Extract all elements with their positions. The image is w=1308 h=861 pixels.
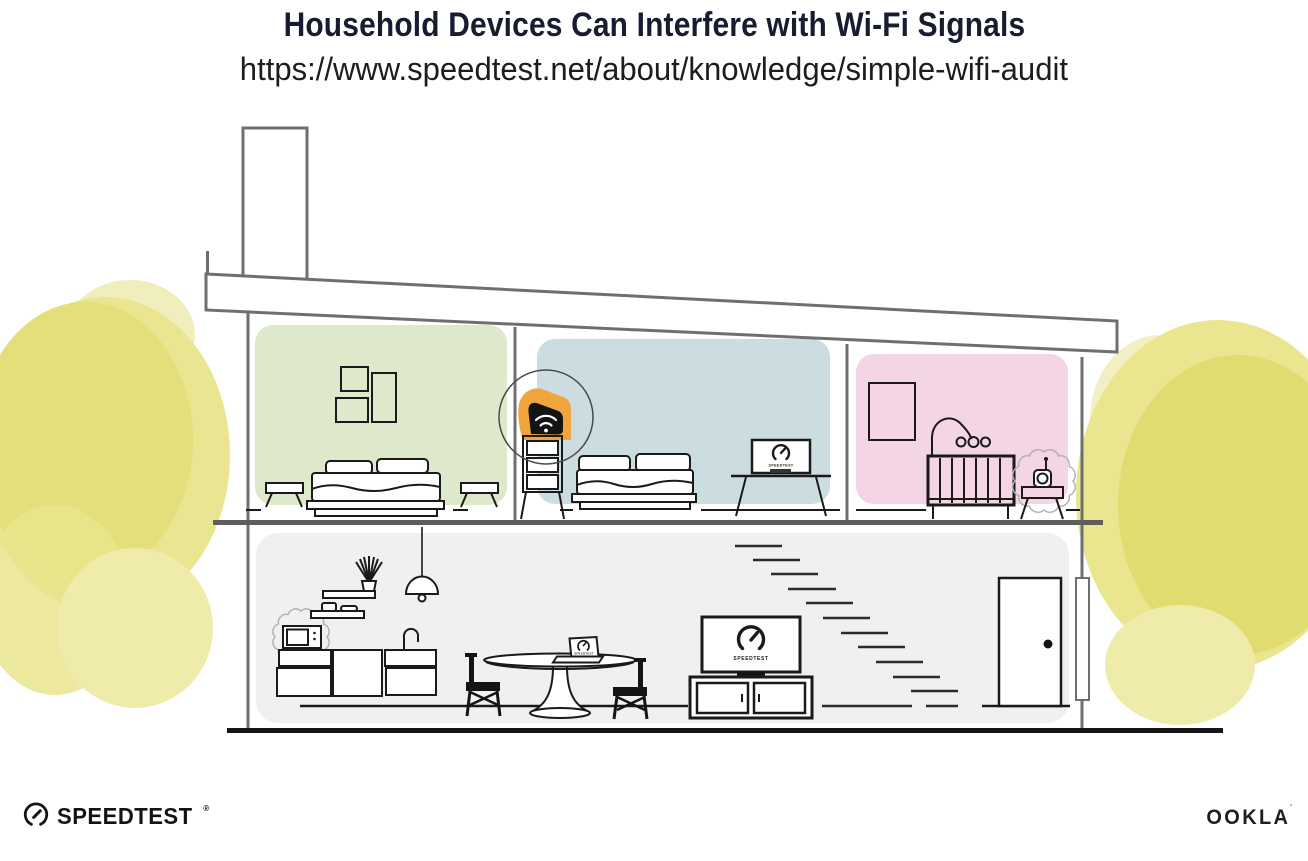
ookla-trademark-mark: ´ [1290,804,1293,815]
kitchen-cabinets [277,650,436,696]
laptop-screen-label: SPEEDTEST [574,652,593,656]
ookla-wordmark: OOKLA [1207,806,1291,830]
source-url: https://www.speedtest.net/about/knowledg… [240,51,1068,88]
router-shelf [521,436,564,519]
bush-right [1076,320,1308,725]
ookla-logo: OOKLA ´ [1202,806,1294,830]
speedtest-logo: SPEEDTEST ® [22,802,211,830]
tv-screen-label: SPEEDTEST [733,656,768,662]
bush-left [0,280,230,708]
speedtest-wordmark: SPEEDTEST [57,803,193,830]
header: Household Devices Can Interfere with Wi-… [0,6,1308,88]
ground-line [227,728,1223,733]
microwave [283,626,321,648]
house-illustration: SPEEDTEST [0,0,1308,861]
speedtest-gauge-icon [22,802,50,830]
floor-slab [213,520,1103,525]
chimney [243,128,307,285]
page-title: Household Devices Can Interfere with Wi-… [283,6,1025,45]
door-knob [1044,640,1053,649]
monitor-speedtest: SPEEDTEST [752,440,810,473]
speedtest-registered-mark: ® [203,804,209,813]
tv-stand [690,677,812,718]
downpipe [1076,578,1089,700]
tv-living-room: SPEEDTEST [690,617,812,718]
monitor-screen-label: SPEEDTEST [769,464,794,468]
infographic-canvas: Household Devices Can Interfere with Wi-… [0,0,1308,861]
